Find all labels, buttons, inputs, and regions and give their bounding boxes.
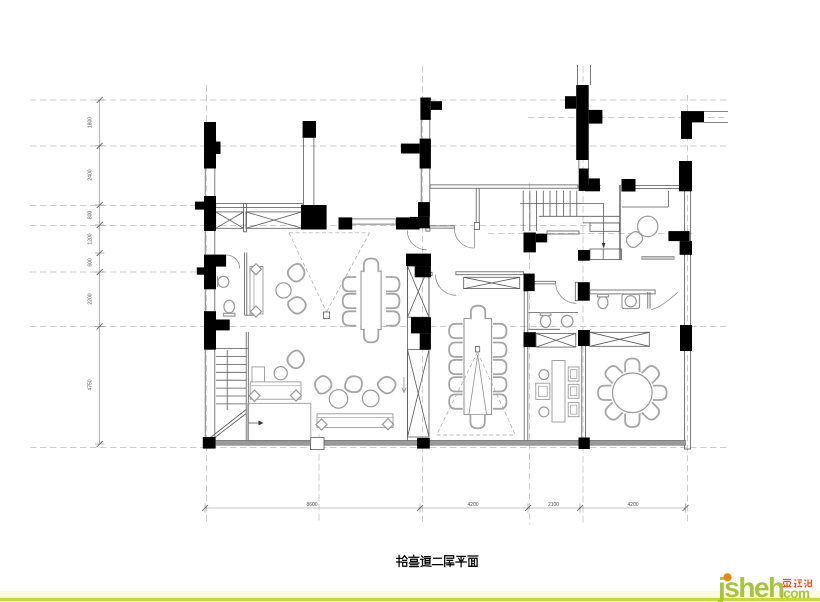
svg-text:800: 800	[88, 211, 94, 220]
svg-text:4750: 4750	[88, 379, 94, 390]
svg-text:4200: 4200	[627, 502, 638, 508]
svg-text:.com: .com	[780, 586, 810, 601]
svg-text:2200: 2200	[88, 293, 94, 304]
svg-text:2400: 2400	[88, 169, 94, 180]
svg-text:4200: 4200	[467, 502, 478, 508]
svg-text:600: 600	[88, 258, 94, 267]
svg-text:2100: 2100	[548, 502, 559, 508]
svg-text:8600: 8600	[306, 502, 317, 508]
svg-text:1800: 1800	[88, 117, 94, 128]
svg-text:1200: 1200	[88, 233, 94, 244]
